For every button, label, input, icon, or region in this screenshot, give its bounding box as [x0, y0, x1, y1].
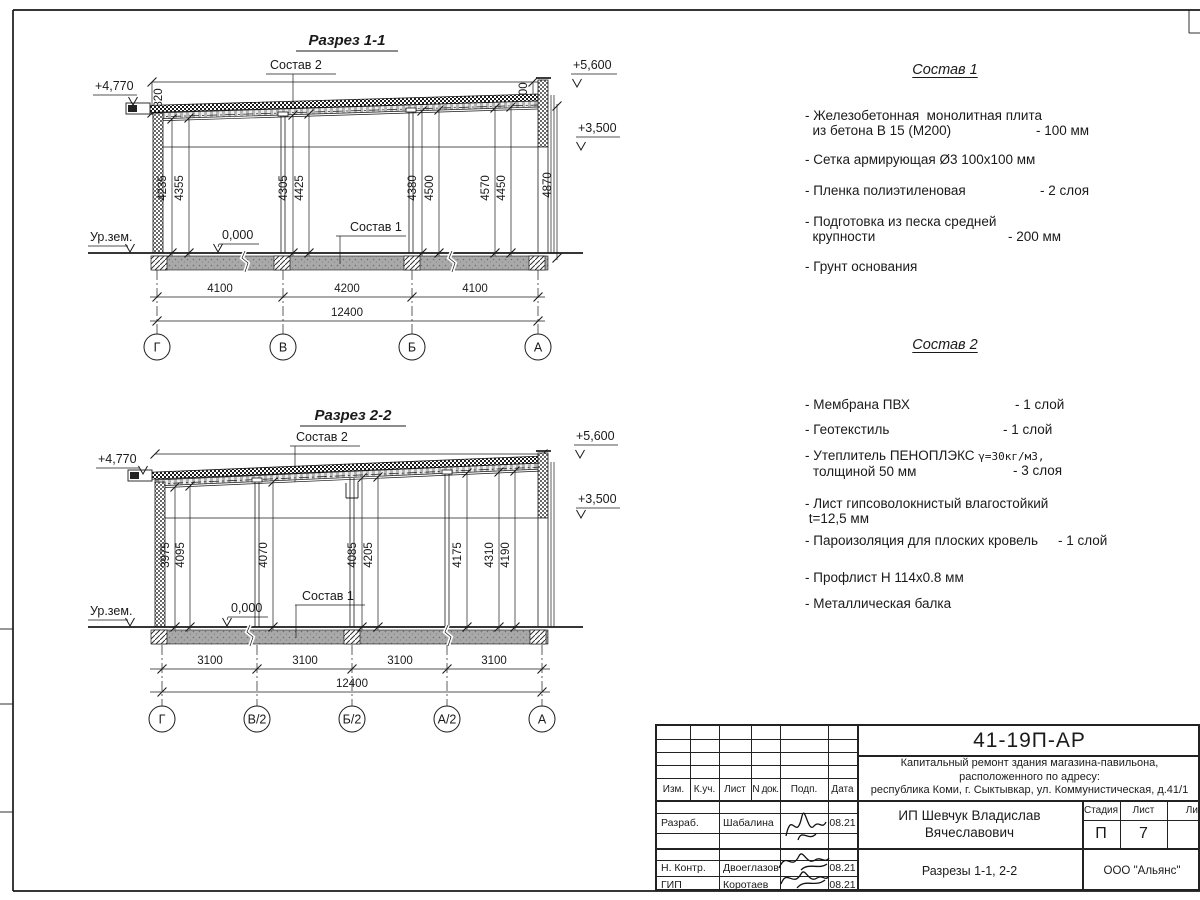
zero-level-label: 0,000	[222, 228, 253, 242]
tb-col-ndok: N док.	[751, 778, 780, 800]
drawing-sheet: { "section1": { "title": "Разрез 1-1", "…	[0, 0, 1200, 900]
axis-bubbles: Г В Б А	[144, 334, 551, 360]
svg-text:А: А	[534, 341, 543, 355]
svg-text:4305: 4305	[278, 175, 290, 201]
svg-text:А: А	[538, 713, 547, 727]
right-wall	[538, 518, 548, 627]
tb-name-gip: Коротаев	[719, 876, 780, 891]
tb-name-razrab: Шабалина	[719, 813, 780, 833]
list-item: - Профлист Н 114х0.8 мм	[805, 570, 1200, 585]
ground-level-label: Ур.зем.	[90, 604, 132, 618]
tb-drawing-title: Разрезы 1-1, 2-2	[857, 848, 1082, 891]
list-item: - Пленка полиэтиленовая - 2 слоя	[805, 183, 1200, 198]
section2-title: Разрез 2-2	[314, 407, 392, 424]
sostav1-leader-label: Состав 1	[350, 220, 402, 234]
vertical-dimensions: 3975 4095 4070 4085 4205 4175 4310 4190	[160, 467, 520, 632]
svg-text:3975: 3975	[160, 542, 172, 568]
section1-title: Разрез 1-1	[308, 32, 385, 49]
right-parapet	[538, 453, 548, 518]
svg-text:4380: 4380	[407, 175, 419, 201]
list-item: - Лист гипсоволокнистый влагостойкий t=1…	[805, 496, 1200, 526]
title-block: Изм. К.уч. Лист N док. Подп. Дата Разраб…	[655, 724, 1200, 891]
svg-text:4500: 4500	[424, 175, 436, 201]
sostav2-leader-label: Состав 2	[270, 58, 322, 72]
svg-text:4070: 4070	[258, 542, 270, 568]
svg-text:4095: 4095	[175, 542, 187, 568]
svg-text:4100: 4100	[207, 283, 233, 295]
svg-text:3100: 3100	[481, 655, 507, 667]
svg-text:4355: 4355	[174, 175, 186, 201]
svg-text:4310: 4310	[484, 542, 496, 568]
svg-text:А/2: А/2	[438, 713, 457, 727]
elev-3500: +3,500	[578, 492, 617, 506]
vertical-dimensions: 4235 4355 4305 4425 4380 4500 4570 4450 …	[157, 102, 562, 263]
svg-text:4205: 4205	[363, 542, 375, 568]
tb-line	[657, 752, 857, 753]
right-parapet	[538, 80, 548, 147]
tb-project-description: Капитальный ремонт здания магазина-павил…	[857, 755, 1200, 800]
tb-client: ИП Шевчук Владислав Вячеславович	[857, 800, 1082, 848]
elev-3500: +3,500	[578, 121, 617, 135]
section-2-2: Разрез 2-2 Состав 2	[88, 407, 620, 732]
signature-razrab	[778, 800, 830, 848]
svg-text:4085: 4085	[347, 542, 359, 568]
svg-text:4570: 4570	[480, 175, 492, 201]
tb-col-izm: Изм.	[657, 778, 690, 800]
sostav1-leader-label: Состав 1	[302, 589, 354, 603]
svg-text:3100: 3100	[292, 655, 318, 667]
svg-text:4200: 4200	[334, 283, 360, 295]
svg-text:Г: Г	[159, 713, 166, 727]
svg-text:4425: 4425	[294, 175, 306, 201]
tb-line	[657, 739, 857, 740]
svg-text:4870: 4870	[542, 172, 554, 198]
svg-text:3100: 3100	[197, 655, 223, 667]
svg-text:4100: 4100	[462, 283, 488, 295]
list-item: - Грунт основания	[805, 259, 1200, 274]
sostav2-leader-label: Состав 2	[296, 430, 348, 444]
horizontal-dimensions: 3100 3100 3100 3100 12400	[150, 655, 550, 697]
svg-text:4190: 4190	[500, 542, 512, 568]
tb-doc-number: 41-19П-АР	[857, 726, 1200, 755]
svg-text:4175: 4175	[452, 542, 464, 568]
list-item: - Мембрана ПВХ - 1 слой	[805, 397, 1200, 412]
tb-name-nkontr: Двоеглазов	[719, 860, 780, 876]
zero-level-label: 0,000	[231, 601, 262, 615]
svg-text:4450: 4450	[496, 175, 508, 201]
right-wall	[538, 147, 548, 253]
sostav1-title: Состав 1	[805, 62, 1085, 78]
tb-col-podp: Подп.	[780, 778, 828, 800]
tb-stage-value: П	[1082, 820, 1120, 848]
svg-text:Б/2: Б/2	[343, 713, 362, 727]
tb-sheets-label: Листов	[1167, 800, 1200, 820]
sostav2-title: Состав 2	[805, 337, 1085, 353]
tb-role-gip: ГИП	[657, 876, 719, 891]
elev-4770: +4,770	[98, 452, 137, 466]
svg-text:Б: Б	[408, 341, 416, 355]
svg-text:3100: 3100	[387, 655, 413, 667]
list-item: - Утеплитель ПЕНОПЛЭКС γ=30кг/м3,толщино…	[805, 448, 1200, 479]
list-item: - Геотекстиль - 1 слой	[805, 422, 1200, 437]
svg-text:В/2: В/2	[248, 713, 267, 727]
tb-role-nkontr: Н. Контр.	[657, 860, 719, 876]
list-item: - Сетка армирующая Ø3 100х100 мм	[805, 152, 1200, 167]
list-item: - Железобетонная монолитная плита из бет…	[805, 108, 1200, 138]
svg-text:12400: 12400	[331, 307, 363, 319]
section-1-1: Разрез 1-1 820 600	[88, 32, 620, 360]
tb-date-nkontr: 08.21	[828, 860, 857, 876]
svg-text:Г: Г	[154, 341, 161, 355]
tb-sheet-label: Лист	[1120, 800, 1167, 820]
list-item: - Подготовка из песка средней крупности …	[805, 214, 1200, 244]
axis-bubbles: Г В/2 Б/2 А/2 А	[149, 706, 555, 732]
elev-5600: +5,600	[576, 429, 615, 443]
tb-line	[657, 765, 857, 766]
ground-level-label: Ур.зем.	[90, 230, 132, 244]
svg-text:4235: 4235	[157, 175, 169, 201]
tb-company: ООО "Альянс"	[1082, 848, 1200, 891]
tb-date-razrab: 08.21	[828, 813, 857, 833]
tb-col-data: Дата	[828, 778, 857, 800]
signature-gip	[775, 864, 831, 891]
horizontal-dimensions: 4100 4200 4100 12400	[150, 283, 545, 326]
floor-slab	[153, 256, 548, 270]
tb-col-list: Лист	[719, 778, 751, 800]
svg-text:12400: 12400	[336, 678, 368, 690]
tb-col-kuch: К.уч.	[690, 778, 719, 800]
list-item: - Металлическая балка	[805, 596, 1200, 611]
tb-role-razrab: Разраб.	[657, 813, 719, 833]
list-item: - Пароизоляция для плоских кровель - 1 с…	[805, 533, 1200, 548]
axis-lines	[157, 270, 538, 334]
tb-date-gip: 08.21	[828, 876, 857, 891]
elev-4770: +4,770	[95, 79, 134, 93]
tb-sheet-value: 7	[1120, 820, 1167, 848]
svg-text:В: В	[279, 341, 287, 355]
tb-stage-label: Стадия	[1082, 800, 1120, 820]
elev-5600: +5,600	[573, 58, 612, 72]
